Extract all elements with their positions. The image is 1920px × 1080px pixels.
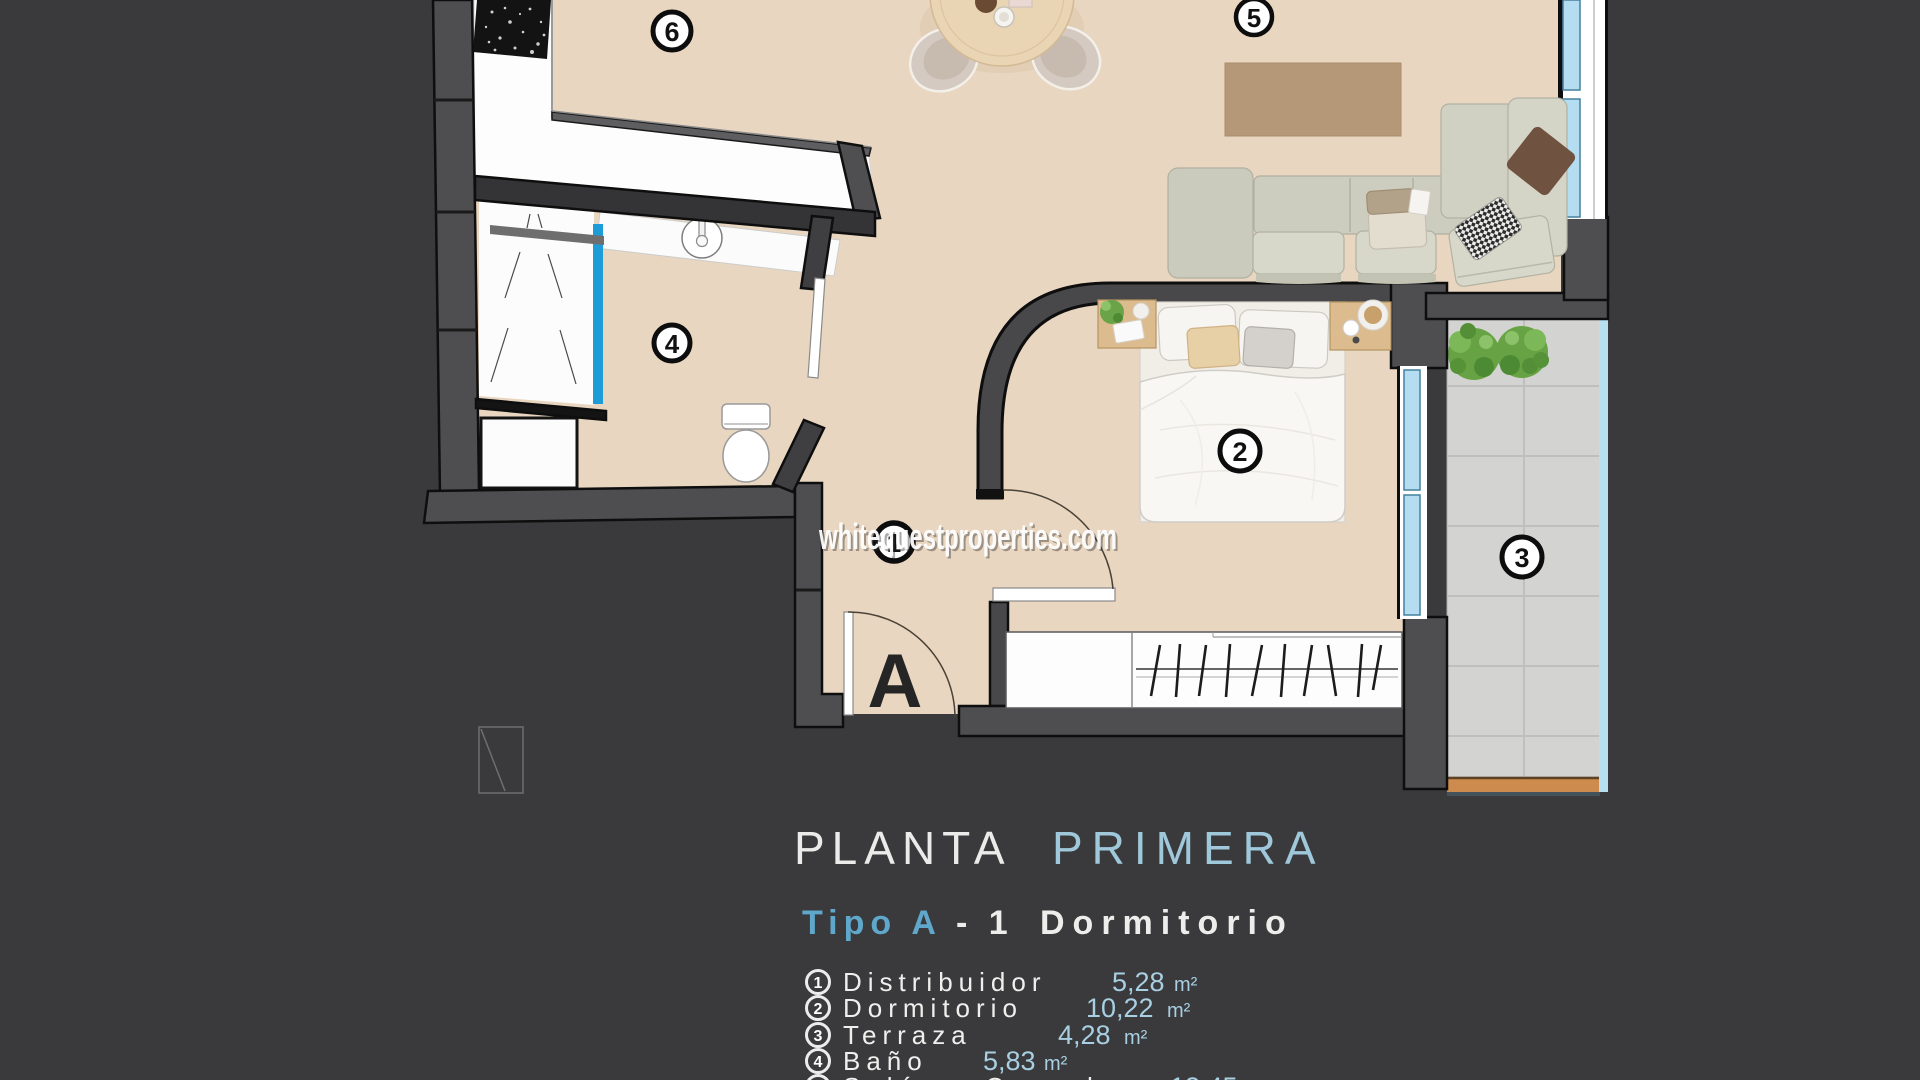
svg-text:whitequestproperties.com: whitequestproperties.com	[818, 516, 1117, 557]
svg-text:4: 4	[665, 329, 680, 359]
svg-text:6: 6	[664, 17, 679, 47]
svg-text:2: 2	[814, 1001, 823, 1018]
svg-text:Tipo A: Tipo A	[802, 904, 942, 942]
svg-text:- 1: - 1	[956, 904, 1014, 942]
svg-text:Dormitorio: Dormitorio	[843, 993, 1023, 1023]
svg-text:2: 2	[1232, 437, 1247, 467]
svg-text:Comedor: Comedor	[985, 1072, 1134, 1080]
svg-text:4: 4	[814, 1054, 823, 1071]
svg-text:m²: m²	[1174, 974, 1198, 996]
svg-text:m²: m²	[1124, 1027, 1148, 1049]
svg-text:m²: m²	[1167, 1000, 1191, 1022]
svg-text:Salón: Salón	[843, 1072, 940, 1080]
svg-text:3: 3	[1514, 543, 1529, 573]
svg-text:A: A	[868, 639, 923, 724]
svg-text:1: 1	[814, 975, 823, 992]
svg-text:10,22: 10,22	[1086, 993, 1154, 1023]
svg-text:13,45: 13,45	[1170, 1072, 1238, 1080]
svg-text:5: 5	[1247, 3, 1261, 33]
svg-text:PLANTAPRIMERA: PLANTAPRIMERA	[794, 822, 1325, 874]
svg-text:3: 3	[814, 1028, 823, 1045]
svg-text:Dormitorio: Dormitorio	[1040, 904, 1294, 942]
svg-text:4,28: 4,28	[1058, 1020, 1111, 1050]
